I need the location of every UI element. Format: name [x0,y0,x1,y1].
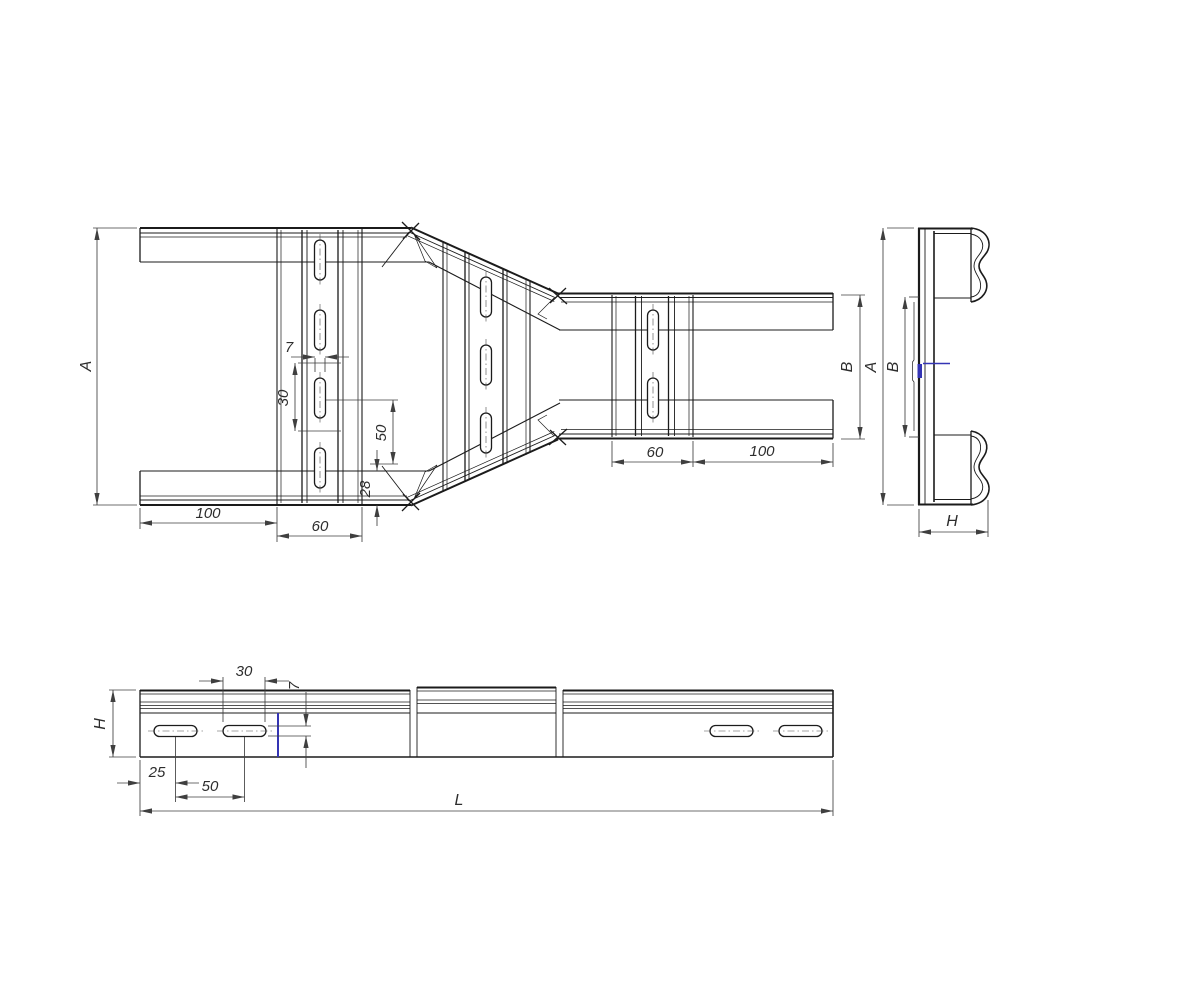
ladder-reducer-drawing: A 100 60 7 30 50 [0,0,1200,1000]
plan-transition-bottom [382,403,567,511]
end-dim-label-H: H [946,513,958,530]
end-dim-label-A: A [863,362,880,374]
end-profile-bottom-flange [918,431,989,505]
plan-narrow-top-rail [557,293,833,330]
plan-dim-label-B: B [839,361,856,372]
technical-drawing-page: A 100 60 7 30 50 [0,0,1200,1000]
side-dim-label-L: L [455,792,464,809]
plan-dim-label-A: A [78,361,95,373]
narrow-rung-slots [648,304,659,424]
end-profile-web [913,228,935,505]
plan-dim-label-7: 7 [285,339,294,356]
plan-middle-rung [443,242,530,492]
plan-narrow-bottom-rail [557,400,833,439]
middle-rung-slots [481,271,492,459]
side-dim-label-30: 30 [236,663,253,680]
side-dimensions: H 30 7 25 50 L [92,663,833,816]
wide-rung-slots [315,234,326,494]
end-dim-label-B: B [885,361,902,372]
side-right-segment [563,690,833,757]
side-dim-label-50: 50 [202,778,219,795]
plan-transition-top [382,222,567,330]
end-dimensions: A B H [863,228,988,537]
plan-dim-label-60-left: 60 [312,518,329,535]
side-dim-label-25: 25 [148,764,166,781]
side-dim-label-H: H [92,718,109,730]
plan-dim-label-60-right: 60 [647,444,664,461]
plan-dim-label-28: 28 [357,480,374,498]
plan-wide-rung [277,228,362,505]
plan-dim-label-50: 50 [373,424,390,441]
end-view: A B H [863,228,989,537]
side-dim-label-7: 7 [286,681,303,690]
plan-dim-label-30: 30 [275,389,292,406]
plan-wide-top-rail [140,228,429,262]
plan-narrow-rung [612,295,693,437]
plan-dimensions: A 100 60 7 30 50 [78,228,865,542]
side-slots [148,726,828,737]
plan-dim-label-100-right: 100 [749,443,775,460]
plan-dim-label-100-left: 100 [195,505,221,522]
plan-wide-bottom-rail [140,471,429,505]
side-middle-segment [417,687,556,757]
end-profile-top-flange [918,228,989,302]
plan-view: A 100 60 7 30 50 [78,222,865,542]
side-view: H 30 7 25 50 L [92,663,833,816]
side-left-segment [140,690,410,757]
